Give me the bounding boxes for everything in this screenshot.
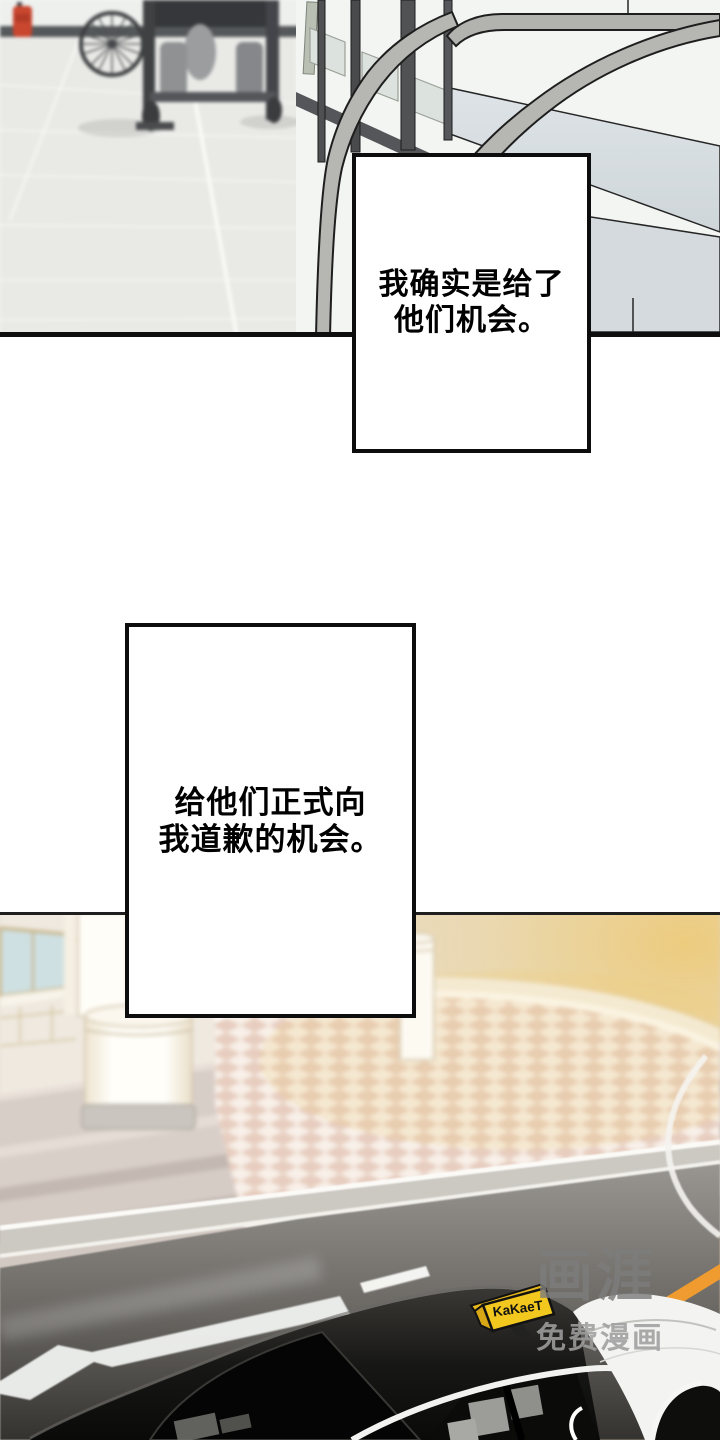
- watermark-tagline: 免费漫画: [536, 1313, 664, 1357]
- caption-box-2: 给他们正式向 我道歉的机会。: [125, 623, 416, 1018]
- wheelchair-cushion: [236, 42, 263, 96]
- wheelchair-cushion: [160, 42, 187, 96]
- wheelchair-caster: [266, 97, 282, 123]
- wall-post: [401, 0, 415, 150]
- pillar-base: [82, 1105, 195, 1129]
- fire-extinguisher: [13, 2, 32, 37]
- watermark-logo: 画涯: [536, 1244, 664, 1308]
- comic-page: KaKaeT 我确实是给了 他们机会。 给他们正式向 我道歉的机会。 画涯 免费…: [0, 0, 720, 1440]
- caption-box-1: 我确实是给了 他们机会。: [352, 153, 591, 453]
- caption2-line1: 给他们正式向: [175, 784, 367, 821]
- caption1-line1: 我确实是给了: [379, 267, 565, 303]
- caption2-line2: 我道歉的机会。: [159, 821, 383, 858]
- wheelchair-backrest: [155, 0, 267, 27]
- site-watermark: 画涯 免费漫画: [536, 1244, 664, 1357]
- wall-post: [318, 0, 325, 162]
- caption1-line2: 他们机会。: [394, 303, 549, 339]
